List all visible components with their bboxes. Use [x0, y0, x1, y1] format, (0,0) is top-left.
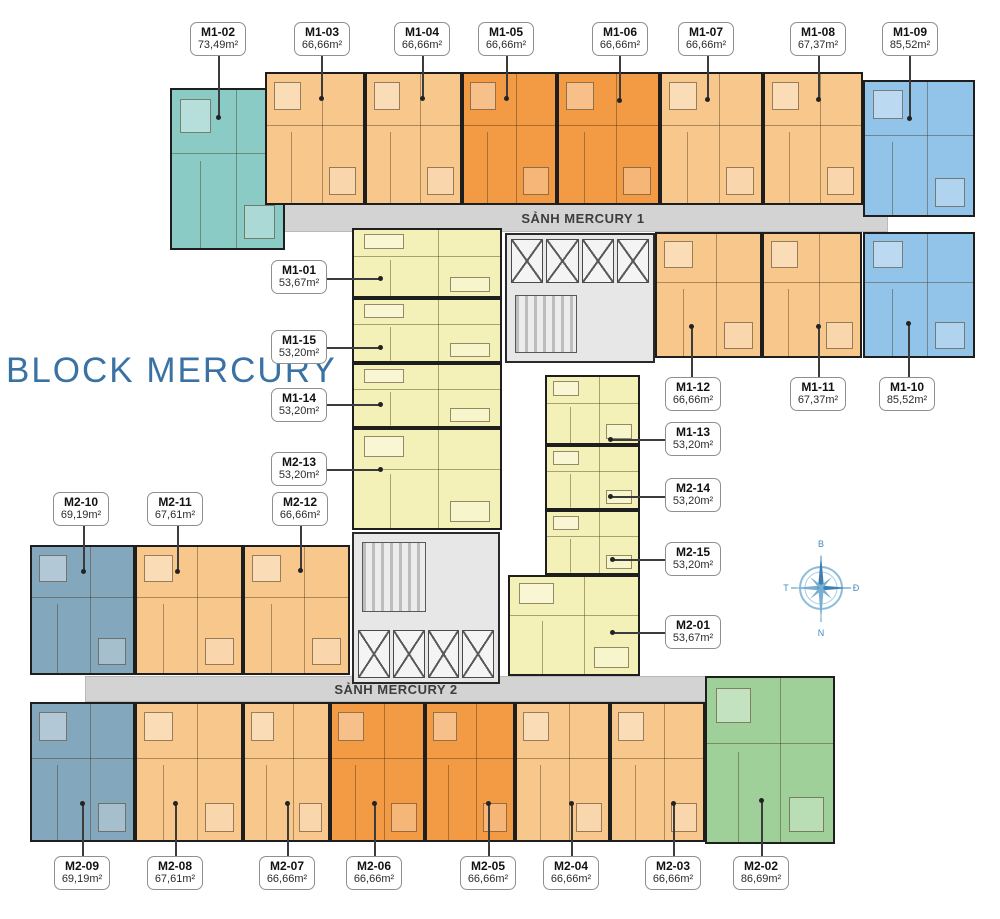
unit-area: 85,52m²: [884, 39, 936, 52]
elevator-icon: [358, 630, 390, 678]
leader-dot-M1-07: [705, 97, 710, 102]
unit-M1-10: [863, 232, 975, 358]
leader-line-M2-04: [571, 803, 573, 856]
unit-code: M1-08: [792, 25, 844, 39]
unit-M2-06: [330, 702, 425, 842]
unit-label-M2-10: M2-1069,19m²: [53, 492, 109, 526]
leader-line-M2-07: [287, 803, 289, 856]
leader-dot-M1-12: [689, 324, 694, 329]
leader-dot-M1-05: [504, 96, 509, 101]
unit-label-M2-12: M2-1266,66m²: [272, 492, 328, 526]
compass-icon: B Đ N T: [783, 536, 859, 640]
leader-line-M2-08: [175, 803, 177, 856]
leader-dot-M2-04: [569, 801, 574, 806]
unit-area: 66,66m²: [396, 39, 448, 52]
leader-line-M2-09: [82, 803, 84, 856]
unit-area: 73,49m²: [192, 39, 244, 52]
elevator-core-1: [505, 233, 655, 363]
unit-M2-08: [135, 702, 243, 842]
leader-line-M2-10: [83, 526, 85, 571]
unit-code: M1-06: [594, 25, 646, 39]
unit-label-M2-14: M2-1453,20m²: [665, 478, 721, 512]
unit-M2-15: [545, 510, 640, 575]
unit-label-M1-15: M1-1553,20m²: [271, 330, 327, 364]
elevator-core-2: [352, 532, 500, 684]
unit-M1-14: [352, 363, 502, 428]
unit-area: 66,66m²: [261, 873, 313, 886]
compass-west-label: T: [783, 583, 789, 593]
unit-label-M1-07: M1-0766,66m²: [678, 22, 734, 56]
unit-M1-05: [462, 72, 557, 205]
unit-M2-12: [243, 545, 350, 675]
compass-north-label: B: [818, 539, 824, 549]
unit-area: 67,61m²: [149, 873, 201, 886]
floor-plan-canvas: BLOCK MERCURY SẢNH MERCURY 1 SẢNH MERCUR…: [0, 0, 1000, 919]
leader-dot-M1-08: [816, 97, 821, 102]
unit-area: 53,20m²: [273, 469, 325, 482]
unit-area: 69,19m²: [56, 873, 108, 886]
leader-dot-M1-14: [378, 402, 383, 407]
unit-code: M2-02: [735, 859, 787, 873]
unit-label-M2-08: M2-0867,61m²: [147, 856, 203, 890]
unit-code: M2-03: [647, 859, 699, 873]
leader-line-M1-07: [707, 56, 709, 99]
unit-M1-12: [655, 232, 762, 358]
unit-M2-13: [352, 428, 502, 530]
elevator-icon: [582, 239, 614, 283]
unit-label-M1-03: M1-0366,66m²: [294, 22, 350, 56]
unit-code: M2-08: [149, 859, 201, 873]
leader-line-M1-15: [327, 347, 380, 349]
unit-area: 66,66m²: [462, 873, 514, 886]
elevator-bank-1: [511, 239, 649, 283]
unit-M1-01: [352, 228, 502, 298]
leader-line-M2-14: [610, 496, 665, 498]
unit-label-M1-05: M1-0566,66m²: [478, 22, 534, 56]
unit-code: M1-03: [296, 25, 348, 39]
leader-line-M1-05: [506, 56, 508, 98]
unit-code: M1-10: [881, 380, 933, 394]
leader-line-M2-15: [612, 559, 665, 561]
leader-dot-M2-14: [608, 494, 613, 499]
leader-line-M1-03: [321, 56, 323, 98]
unit-area: 67,61m²: [149, 509, 201, 522]
unit-code: M1-07: [680, 25, 732, 39]
elevator-icon: [393, 630, 425, 678]
unit-code: M2-14: [667, 481, 719, 495]
leader-line-M2-05: [488, 803, 490, 856]
unit-area: 66,66m²: [647, 873, 699, 886]
unit-label-M2-05: M2-0566,66m²: [460, 856, 516, 890]
unit-area: 66,66m²: [667, 394, 719, 407]
unit-code: M2-10: [55, 495, 107, 509]
unit-label-M2-15: M2-1553,20m²: [665, 542, 721, 576]
unit-area: 66,66m²: [480, 39, 532, 52]
unit-M2-01: [508, 575, 640, 676]
leader-dot-M1-13: [608, 437, 613, 442]
unit-M1-07: [660, 72, 763, 205]
staircase-icon: [362, 542, 426, 612]
elevator-icon: [428, 630, 460, 678]
unit-M2-05: [425, 702, 515, 842]
leader-dot-M1-06: [617, 98, 622, 103]
unit-code: M2-06: [348, 859, 400, 873]
unit-code: M1-01: [273, 263, 325, 277]
leader-dot-M2-11: [175, 569, 180, 574]
unit-label-M2-11: M2-1167,61m²: [147, 492, 203, 526]
unit-M1-13: [545, 375, 640, 445]
leader-dot-M1-01: [378, 276, 383, 281]
leader-dot-M2-15: [610, 557, 615, 562]
unit-label-M1-08: M1-0867,37m²: [790, 22, 846, 56]
unit-code: M1-12: [667, 380, 719, 394]
unit-code: M2-01: [667, 618, 719, 632]
leader-line-M1-01: [327, 278, 380, 280]
unit-M1-08: [763, 72, 863, 205]
unit-M1-09: [863, 80, 975, 217]
unit-area: 66,66m²: [545, 873, 597, 886]
leader-dot-M1-04: [420, 96, 425, 101]
unit-area: 53,67m²: [667, 632, 719, 645]
unit-code: M2-05: [462, 859, 514, 873]
unit-label-M1-11: M1-1167,37m²: [790, 377, 846, 411]
elevator-icon: [462, 630, 494, 678]
unit-label-M1-02: M1-0273,49m²: [190, 22, 246, 56]
unit-code: M2-09: [56, 859, 108, 873]
leader-line-M2-06: [374, 803, 376, 856]
unit-label-M2-04: M2-0466,66m²: [543, 856, 599, 890]
unit-area: 66,66m²: [594, 39, 646, 52]
leader-dot-M2-02: [759, 798, 764, 803]
leader-dot-M2-01: [610, 630, 615, 635]
corridor-mercury-1-label: SẢNH MERCURY 1: [521, 211, 644, 226]
leader-dot-M1-11: [816, 324, 821, 329]
leader-dot-M2-03: [671, 801, 676, 806]
leader-dot-M1-15: [378, 345, 383, 350]
unit-M2-04: [515, 702, 610, 842]
unit-M1-03: [265, 72, 365, 205]
unit-label-M1-06: M1-0666,66m²: [592, 22, 648, 56]
unit-code: M1-13: [667, 425, 719, 439]
unit-code: M1-11: [792, 380, 844, 394]
leader-line-M2-03: [673, 803, 675, 856]
unit-code: M1-02: [192, 25, 244, 39]
leader-line-M1-10: [908, 323, 910, 377]
unit-M2-02: [705, 676, 835, 844]
unit-label-M2-06: M2-0666,66m²: [346, 856, 402, 890]
unit-label-M2-09: M2-0969,19m²: [54, 856, 110, 890]
leader-dot-M2-05: [486, 801, 491, 806]
unit-label-M1-14: M1-1453,20m²: [271, 388, 327, 422]
unit-label-M1-10: M1-1085,52m²: [879, 377, 935, 411]
leader-dot-M1-09: [907, 116, 912, 121]
leader-dot-M2-08: [173, 801, 178, 806]
leader-line-M1-09: [909, 56, 911, 118]
unit-area: 53,67m²: [273, 277, 325, 290]
unit-area: 66,66m²: [296, 39, 348, 52]
leader-dot-M2-10: [81, 569, 86, 574]
unit-area: 66,66m²: [348, 873, 400, 886]
leader-line-M2-12: [300, 526, 302, 570]
unit-M2-14: [545, 445, 640, 510]
unit-code: M2-04: [545, 859, 597, 873]
elevator-icon: [617, 239, 649, 283]
leader-line-M1-06: [619, 56, 621, 100]
unit-label-M1-01: M1-0153,67m²: [271, 260, 327, 294]
unit-label-M2-07: M2-0766,66m²: [259, 856, 315, 890]
unit-code: M1-14: [273, 391, 325, 405]
leader-dot-M1-10: [906, 321, 911, 326]
unit-area: 53,20m²: [273, 405, 325, 418]
unit-area: 53,20m²: [273, 347, 325, 360]
unit-label-M1-13: M1-1353,20m²: [665, 422, 721, 456]
leader-dot-M2-07: [285, 801, 290, 806]
elevator-bank-2: [358, 630, 494, 678]
leader-line-M2-11: [177, 526, 179, 571]
compass-east-label: Đ: [853, 583, 859, 593]
leader-line-M1-13: [610, 439, 665, 441]
unit-M1-04: [365, 72, 462, 205]
unit-area: 53,20m²: [667, 439, 719, 452]
unit-area: 85,52m²: [881, 394, 933, 407]
unit-area: 67,37m²: [792, 394, 844, 407]
leader-dot-M2-13: [378, 467, 383, 472]
unit-label-M2-13: M2-1353,20m²: [271, 452, 327, 486]
leader-line-M1-11: [818, 326, 820, 377]
leader-dot-M1-03: [319, 96, 324, 101]
unit-label-M1-04: M1-0466,66m²: [394, 22, 450, 56]
unit-code: M1-15: [273, 333, 325, 347]
leader-line-M2-01: [612, 632, 665, 634]
unit-code: M1-04: [396, 25, 448, 39]
staircase-icon: [515, 295, 577, 353]
unit-M2-03: [610, 702, 705, 842]
unit-label-M1-12: M1-1266,66m²: [665, 377, 721, 411]
unit-code: M2-15: [667, 545, 719, 559]
unit-M1-15: [352, 298, 502, 363]
leader-line-M1-08: [818, 56, 820, 99]
unit-M2-11: [135, 545, 243, 675]
unit-label-M2-03: M2-0366,66m²: [645, 856, 701, 890]
leader-line-M1-02: [218, 56, 220, 117]
leader-line-M2-13: [327, 469, 380, 471]
unit-area: 53,20m²: [667, 559, 719, 572]
leader-line-M1-14: [327, 404, 380, 406]
unit-M1-11: [762, 232, 862, 358]
leader-line-M1-12: [691, 326, 693, 377]
unit-label-M2-02: M2-0286,69m²: [733, 856, 789, 890]
unit-area: 67,37m²: [792, 39, 844, 52]
unit-code: M1-09: [884, 25, 936, 39]
unit-area: 69,19m²: [55, 509, 107, 522]
unit-area: 86,69m²: [735, 873, 787, 886]
leader-dot-M2-12: [298, 568, 303, 573]
unit-area: 53,20m²: [667, 495, 719, 508]
unit-code: M2-13: [273, 455, 325, 469]
elevator-icon: [511, 239, 543, 283]
unit-label-M2-01: M2-0153,67m²: [665, 615, 721, 649]
compass-south-label: N: [818, 628, 825, 638]
unit-code: M2-11: [149, 495, 201, 509]
unit-M1-06: [557, 72, 660, 205]
unit-code: M1-05: [480, 25, 532, 39]
leader-dot-M1-02: [216, 115, 221, 120]
unit-area: 66,66m²: [680, 39, 732, 52]
unit-code: M2-12: [274, 495, 326, 509]
unit-label-M1-09: M1-0985,52m²: [882, 22, 938, 56]
leader-dot-M2-09: [80, 801, 85, 806]
unit-area: 66,66m²: [274, 509, 326, 522]
leader-line-M1-04: [422, 56, 424, 98]
leader-dot-M2-06: [372, 801, 377, 806]
elevator-icon: [546, 239, 578, 283]
leader-line-M2-02: [761, 800, 763, 856]
unit-code: M2-07: [261, 859, 313, 873]
